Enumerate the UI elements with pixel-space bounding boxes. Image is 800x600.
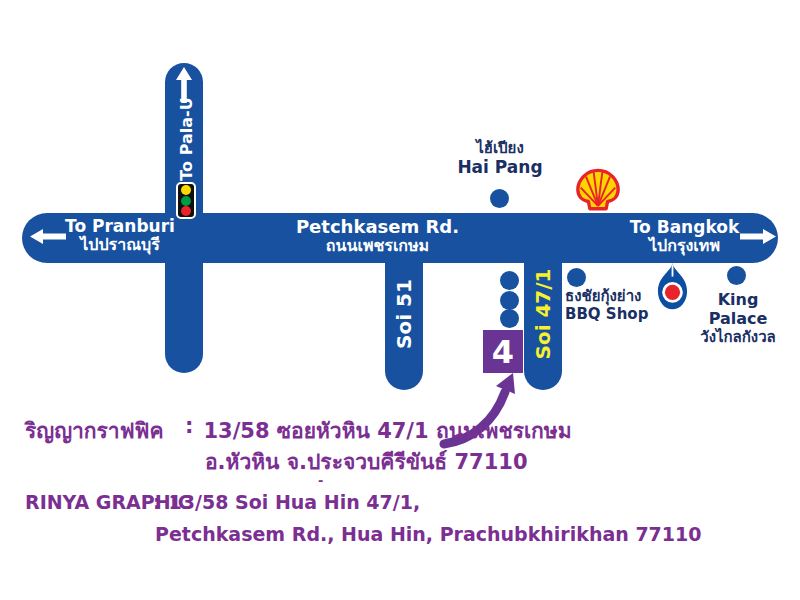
address-small-dash: - <box>318 473 323 488</box>
shell-logo-icon <box>574 167 622 213</box>
hai-pang-label: ไฮ้เปียง Hai Pang <box>452 139 548 177</box>
king-palace-label: King Palace วังไกลกังวล <box>692 290 784 346</box>
business-name-en: RINYA GRAPHIC <box>25 491 153 513</box>
to-pranburi-label: To Pranburi ไปปราณบุรี <box>55 216 185 255</box>
soi-47-1-dot-1 <box>500 271 519 290</box>
map-canvas: To Pranburi ไปปราณบุรี Petchkasem Rd. ถน… <box>0 0 800 600</box>
soi-47-1-label: Soi 47/1 <box>531 268 555 359</box>
to-pranburi-en: To Pranburi <box>55 216 185 236</box>
bbq-shop-th: ธงชัยกุ้งย่าง <box>565 287 660 305</box>
business-name-th: ริญญากราฟฟิค <box>25 414 185 447</box>
bbq-shop-en: BBQ Shop <box>565 305 660 323</box>
address-english-line-2: Petchkasem Rd., Hua Hin, Prachubkhirikha… <box>155 523 701 545</box>
to-bangkok-en: To Bangkok <box>622 217 747 237</box>
destination-marker-label: 4 <box>492 333 514 371</box>
soi-51-label: Soi 51 <box>392 279 416 349</box>
traffic-light-yellow <box>181 185 191 195</box>
bbq-shop-label: ธงชัยกุ้งย่าง BBQ Shop <box>565 287 660 323</box>
address-en-value-2: Petchkasem Rd., Hua Hin, Prachubkhirikha… <box>155 523 701 545</box>
address-english-line-1: RINYA GRAPHIC : 13/58 Soi Hua Hin 47/1, <box>25 491 420 513</box>
hai-pang-dot <box>490 189 509 208</box>
to-bangkok-label: To Bangkok ไปกรุงเทพ <box>622 217 747 256</box>
king-palace-th: วังไกลกังวล <box>692 328 784 346</box>
address-th-colon: : <box>185 414 193 447</box>
petchkasem-road-label: Petchkasem Rd. ถนนเพชรเกษม <box>295 216 460 256</box>
traffic-light-red <box>181 206 191 216</box>
soi-47-1-dot-3 <box>500 309 519 328</box>
traffic-light-icon <box>176 182 196 219</box>
to-palau-label: To Pala-U <box>177 97 196 180</box>
address-th-value-1: 13/58 ซอยหัวหิน 47/1 ถนนเพชรเกษม <box>203 414 571 447</box>
king-palace-dot <box>727 266 746 285</box>
traffic-light-green <box>181 196 191 206</box>
address-en-value-1: 13/58 Soi Hua Hin 47/1, <box>169 491 421 513</box>
destination-marker-4: 4 <box>483 330 523 373</box>
to-bangkok-th: ไปกรุงเทพ <box>622 237 747 256</box>
small-dash: - <box>318 473 323 488</box>
address-en-colon: : <box>153 491 161 513</box>
to-pranburi-th: ไปปราณบุรี <box>55 236 185 255</box>
address-th-value-2: อ.หัวหิน จ.ประจวบคีรีขันธ์ 77110 <box>205 445 528 478</box>
bbq-shop-dot <box>567 268 586 287</box>
king-palace-en: King Palace <box>692 290 784 328</box>
right-arrow-icon <box>740 229 776 244</box>
ptt-logo-icon <box>654 262 691 313</box>
hai-pang-en: Hai Pang <box>452 157 548 177</box>
address-thai-line-1: ริญญากราฟฟิค : 13/58 ซอยหัวหิน 47/1 ถนนเ… <box>25 414 572 447</box>
hai-pang-th: ไฮ้เปียง <box>452 139 548 157</box>
address-thai-line-2: อ.หัวหิน จ.ประจวบคีรีขันธ์ 77110 <box>205 445 528 478</box>
petchkasem-road-name-th: ถนนเพชรเกษม <box>295 237 460 256</box>
soi-47-1-dot-2 <box>500 291 519 310</box>
petchkasem-road-name-en: Petchkasem Rd. <box>295 216 460 237</box>
